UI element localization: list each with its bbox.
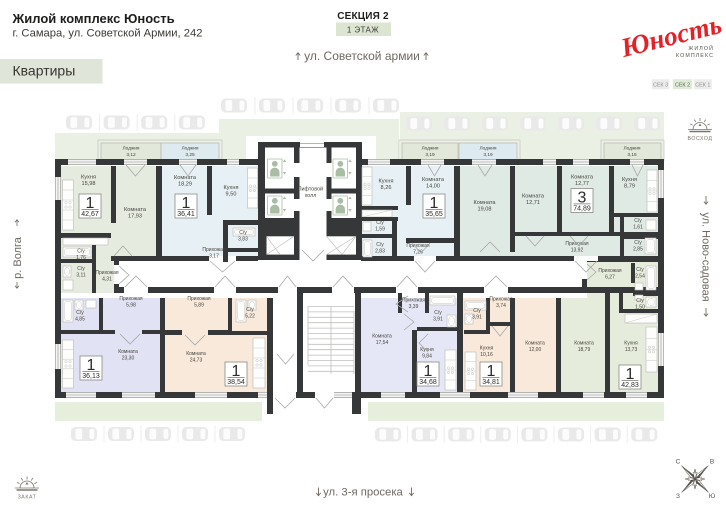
svg-text:С/у: С/у (634, 218, 642, 224)
svg-text:Прихожая: Прихожая (119, 296, 142, 302)
svg-text:3,15: 3,15 (627, 152, 637, 158)
svg-text:С/у: С/у (473, 308, 481, 314)
svg-text:Кухня: Кухня (622, 177, 637, 183)
svg-text:ЗАКАТ: ЗАКАТ (18, 495, 37, 501)
svg-text:1,76: 1,76 (76, 255, 86, 261)
svg-text:С/у: С/у (77, 266, 85, 272)
svg-text:9,84: 9,84 (422, 354, 432, 360)
svg-text:3,91: 3,91 (472, 315, 482, 321)
svg-text:6,27: 6,27 (605, 275, 615, 281)
svg-text:С/у: С/у (376, 220, 384, 226)
svg-text:Прихожая: Прихожая (598, 268, 621, 274)
svg-text:12,71: 12,71 (526, 200, 540, 206)
svg-text:З: З (676, 493, 680, 500)
svg-text:3,11: 3,11 (76, 273, 86, 279)
svg-text:3,17: 3,17 (209, 254, 219, 260)
svg-text:С/у: С/у (239, 230, 247, 236)
svg-text:8,79: 8,79 (624, 184, 635, 190)
svg-text:3,12: 3,12 (126, 152, 136, 158)
svg-text:17,93: 17,93 (128, 214, 142, 220)
svg-text:5,98: 5,98 (126, 303, 136, 309)
svg-text:74,89: 74,89 (573, 206, 591, 213)
svg-text:СЕК 1: СЕК 1 (695, 82, 710, 88)
svg-text:С: С (676, 459, 681, 466)
svg-text:Прихожая: Прихожая (95, 270, 118, 276)
svg-text:1 ЭТАЖ: 1 ЭТАЖ (347, 26, 379, 35)
svg-text:5,22: 5,22 (245, 314, 255, 320)
svg-text:С/у: С/у (634, 240, 642, 246)
svg-text:ул. 3-я просека: ул. 3-я просека (323, 487, 403, 499)
svg-text:1,59: 1,59 (375, 227, 385, 233)
svg-text:г. Самара, ул. Советской Армии: г. Самара, ул. Советской Армии, 242 (13, 28, 203, 40)
svg-text:С/у: С/у (636, 298, 644, 304)
svg-text:34,68: 34,68 (419, 379, 437, 386)
svg-text:38,54: 38,54 (227, 379, 245, 386)
svg-text:Комната: Комната (118, 349, 138, 355)
svg-text:13,92: 13,92 (571, 248, 584, 254)
svg-text:13,73: 13,73 (625, 347, 638, 353)
svg-text:ул. Советской армии: ул. Советской армии (304, 49, 420, 63)
svg-text:3,83: 3,83 (238, 237, 248, 243)
svg-text:Комната: Комната (522, 194, 545, 200)
svg-text:С/у: С/у (76, 310, 84, 316)
svg-text:Прихожая: Прихожая (406, 243, 429, 249)
svg-text:В: В (710, 459, 714, 466)
svg-text:42,83: 42,83 (621, 382, 639, 389)
svg-text:3,39: 3,39 (409, 304, 419, 310)
svg-text:Кухня: Кухня (81, 175, 96, 181)
svg-text:36,41: 36,41 (177, 211, 195, 218)
svg-text:19,08: 19,08 (478, 207, 492, 213)
svg-text:Кухня: Кухня (480, 346, 494, 352)
svg-text:Прихожая: Прихожая (489, 297, 512, 303)
svg-text:Кухня: Кухня (624, 341, 638, 347)
svg-text:Комната: Комната (571, 175, 594, 181)
svg-text:Лоджия: Лоджия (123, 146, 140, 152)
svg-text:2,83: 2,83 (375, 249, 385, 255)
svg-text:Комната: Комната (422, 177, 445, 183)
svg-text:34,81: 34,81 (482, 379, 500, 386)
svg-text:24,73: 24,73 (190, 358, 203, 364)
svg-text:Комната: Комната (174, 175, 197, 181)
svg-text:С/у: С/у (636, 267, 644, 273)
svg-text:Кухня: Кухня (379, 179, 394, 185)
svg-text:Прихожая: Прихожая (187, 296, 210, 302)
svg-text:18,79: 18,79 (578, 347, 591, 353)
svg-text:3,19: 3,19 (483, 152, 493, 158)
svg-text:С/у: С/у (434, 310, 442, 316)
svg-text:Комната: Комната (574, 341, 594, 347)
svg-text:10,16: 10,16 (480, 352, 493, 358)
svg-text:35,65: 35,65 (425, 211, 443, 218)
svg-text:СЕКЦИЯ 2: СЕКЦИЯ 2 (337, 11, 389, 22)
svg-text:холл: холл (305, 193, 317, 199)
svg-text:3,91: 3,91 (433, 317, 443, 323)
svg-text:1,50: 1,50 (635, 305, 645, 311)
svg-text:СЕК 2: СЕК 2 (675, 82, 690, 88)
svg-text:5,89: 5,89 (194, 303, 204, 309)
svg-text:Прихожая: Прихожая (202, 247, 225, 253)
svg-text:Квартиры: Квартиры (13, 63, 76, 79)
svg-text:СЕК 3: СЕК 3 (653, 82, 668, 88)
svg-text:Комната: Комната (474, 200, 497, 206)
svg-text:Жилой комплекс Юность: Жилой комплекс Юность (12, 11, 175, 26)
svg-text:36,13: 36,13 (82, 373, 100, 380)
svg-text:23,30: 23,30 (122, 356, 135, 362)
svg-text:ул. Ново-садовая: ул. Ново-садовая (700, 212, 712, 301)
svg-text:Комната: Комната (525, 341, 545, 347)
svg-text:12,00: 12,00 (529, 347, 542, 353)
svg-text:3,25: 3,25 (185, 152, 195, 158)
svg-text:ЖИЛОЙ: ЖИЛОЙ (688, 44, 714, 52)
svg-text:Комната: Комната (372, 334, 392, 340)
svg-text:42,67: 42,67 (81, 211, 99, 218)
svg-text:Ю: Ю (709, 493, 716, 500)
svg-text:Лифтовой: Лифтовой (298, 186, 323, 193)
svg-text:ВОСХОД: ВОСХОД (687, 136, 712, 142)
svg-text:17,54: 17,54 (376, 340, 389, 346)
svg-text:Лоджия: Лоджия (624, 146, 641, 152)
svg-text:8,26: 8,26 (381, 185, 392, 191)
svg-text:2,85: 2,85 (633, 247, 643, 253)
svg-text:Кухня: Кухня (224, 185, 239, 191)
svg-text:Лоджия: Лоджия (182, 146, 199, 152)
svg-text:Лоджия: Лоджия (422, 146, 439, 152)
svg-text:14,00: 14,00 (426, 184, 440, 190)
svg-text:Кухня: Кухня (420, 347, 434, 353)
svg-text:2,54: 2,54 (635, 274, 645, 280)
svg-text:18,29: 18,29 (178, 182, 192, 188)
svg-text:4,31: 4,31 (102, 277, 112, 283)
svg-text:3,19: 3,19 (425, 152, 435, 158)
svg-text:15,98: 15,98 (82, 181, 96, 187)
svg-text:3,74: 3,74 (496, 303, 506, 309)
svg-text:Комната: Комната (186, 351, 206, 357)
svg-text:С/у: С/у (376, 242, 384, 248)
svg-text:Комната: Комната (124, 207, 147, 213)
svg-text:1,61: 1,61 (633, 225, 643, 231)
svg-text:С/у: С/у (77, 249, 85, 255)
svg-text:9,50: 9,50 (226, 192, 237, 198)
svg-text:р. Волга: р. Волга (12, 236, 24, 279)
svg-text:12,77: 12,77 (575, 181, 589, 187)
svg-text:4,85: 4,85 (75, 317, 85, 323)
svg-text:Лоджия: Лоджия (480, 146, 497, 152)
svg-text:КОМПЛЕКС: КОМПЛЕКС (676, 53, 714, 59)
svg-text:Прихожая: Прихожая (402, 298, 425, 304)
svg-text:С/у: С/у (246, 307, 254, 313)
